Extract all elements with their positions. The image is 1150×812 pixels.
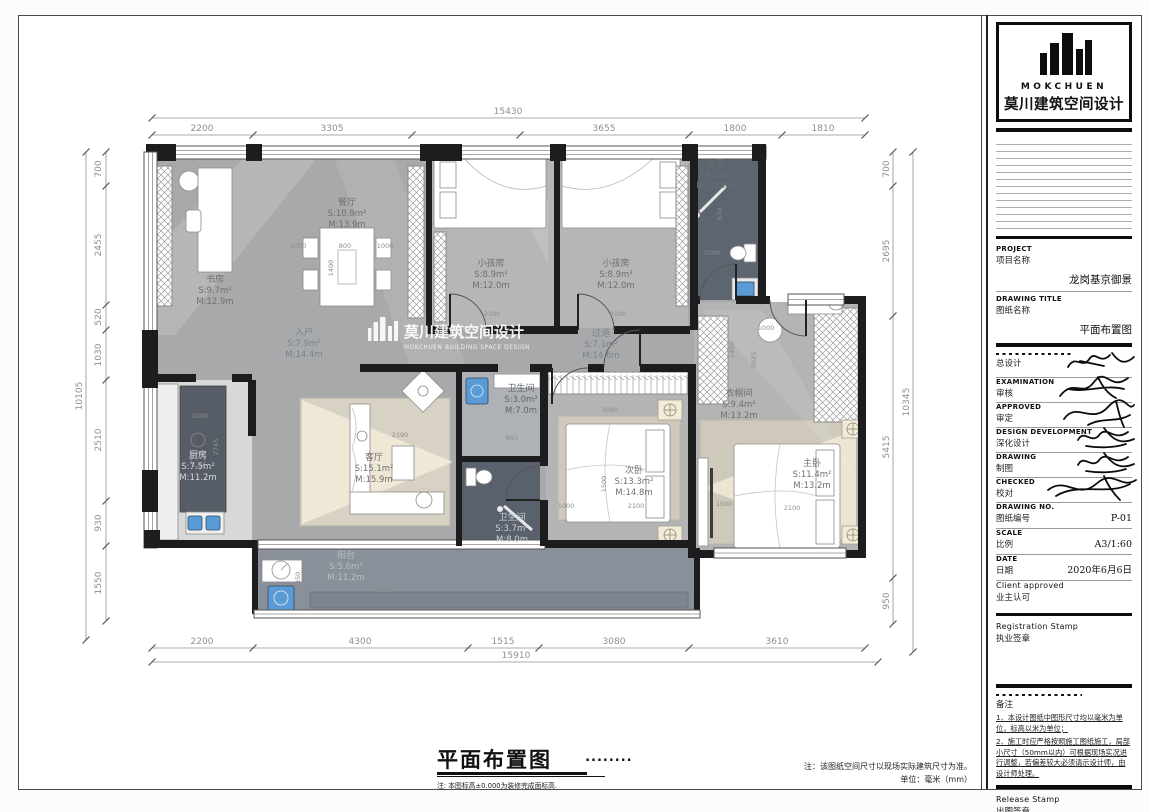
plan-dimension-annotation: 1350 xyxy=(294,572,302,589)
room-area-s: S:6.1m² xyxy=(698,170,731,180)
plan-dimension-annotation: 1500 xyxy=(716,500,733,508)
registration-label-cn: 执业签章 xyxy=(996,632,1132,644)
dimension-total-label: 10345 xyxy=(902,388,912,417)
balcony-railing xyxy=(254,610,700,618)
room-area-m: M:14.4m xyxy=(285,350,322,360)
sign-row-checked: CHECKED 校对 xyxy=(996,478,1132,503)
room-name: 小孩房 xyxy=(477,257,504,269)
room-area-s: S:7.9m² xyxy=(287,339,320,349)
dimension-label: 950 xyxy=(882,592,892,609)
dimension-chain-top: 2200330536551800181015430 xyxy=(149,107,869,139)
room-area-m: M:12.0m xyxy=(597,281,634,291)
dotted-rule xyxy=(996,694,1082,697)
remark-item: 2、施工时应严格按照施工图纸施工，局部小尺寸（50mm以内）可根据现场实况进行调… xyxy=(996,737,1132,779)
room-area-m: M:11.2m xyxy=(179,473,216,483)
room-area-s: S:9.4m² xyxy=(722,400,755,410)
dimension-label: 2455 xyxy=(94,234,104,257)
signature-examination xyxy=(1058,374,1138,402)
titleblock-separator-2 xyxy=(986,15,988,789)
project-label-cn: 项目名称 xyxy=(996,254,1132,266)
plan-dimension-annotation: 2100 xyxy=(610,310,627,318)
plan-dimension-annotation: 1500 xyxy=(600,476,608,493)
release-label-cn: 出图签章 xyxy=(996,805,1132,812)
registration-label-en: Registration Stamp xyxy=(996,622,1132,631)
watermark-cn: 莫川建筑空间设计 xyxy=(404,323,524,341)
logo-mark-icon xyxy=(1032,31,1096,75)
title-underline xyxy=(437,772,587,775)
room-area-m: M:11.2m xyxy=(327,573,364,583)
room-area-s: S:9.7m² xyxy=(198,286,231,296)
remarks-title: 备注 xyxy=(996,698,1132,710)
dimension-label: 3305 xyxy=(321,124,344,134)
signature-drawing xyxy=(1074,449,1138,477)
signature-design-development xyxy=(1074,424,1138,452)
room-name: 衣帽间 xyxy=(725,387,752,399)
plan-dimension-annotation: 995 xyxy=(506,434,518,442)
brand-name-cn: 莫川建筑空间设计 xyxy=(999,93,1129,114)
scale-value: A3/1:60 xyxy=(1095,539,1132,550)
dimension-note-line2: 单位：毫米（mm） xyxy=(804,773,972,786)
date-row: DATE 日期 2020年6月6日 xyxy=(996,555,1132,581)
plan-dimension-annotation: 3535 xyxy=(376,586,393,594)
drawing-title-label-cn: 图纸名称 xyxy=(996,304,1132,316)
room-name: 主卧 xyxy=(803,457,821,469)
sheet-title: 平面布置图 xyxy=(437,744,552,774)
plan-dimension-annotation: 1400 xyxy=(728,342,736,359)
date-value: 2020年6月6日 xyxy=(1067,562,1132,576)
room-name: 厨房 xyxy=(189,449,207,461)
signature-chief xyxy=(1064,349,1138,377)
plan-dimension-annotation: 1000 xyxy=(704,249,721,257)
closet-window-band xyxy=(788,294,844,305)
dimension-total-label: 15910 xyxy=(502,651,531,661)
dimension-label: 1810 xyxy=(812,124,835,134)
room-name: 过道 xyxy=(592,327,610,339)
room-area-m: M:8.0m xyxy=(496,535,528,545)
room-name: 入户 xyxy=(295,326,313,338)
room-area-m: M:12.9m xyxy=(196,297,233,307)
divider-bar xyxy=(996,128,1132,132)
company-logo: MOKCHUEN 莫川建筑空间设计 xyxy=(996,22,1132,122)
room-name: 卫生间 xyxy=(498,511,525,523)
room-area-s: S:15.1m² xyxy=(355,464,394,474)
divider-bar xyxy=(996,684,1132,688)
dimension-label: 1515 xyxy=(492,637,515,647)
master-window-band xyxy=(714,548,846,558)
dimension-label: 3655 xyxy=(593,124,616,134)
room-area-m: M:14.8m xyxy=(615,488,652,498)
room-label-bath1: 卫生间S:3.0m²M:7.0m xyxy=(504,382,537,416)
room-area-s: S:5.6m² xyxy=(329,562,362,572)
plan-dimension-annotation: 2025 xyxy=(750,352,758,369)
dimension-label: 1550 xyxy=(94,571,104,594)
plan-dimension-annotation: 2100 xyxy=(628,502,645,510)
room-area-s: S:10.9m² xyxy=(328,209,367,219)
dimension-note: 注：该图纸空间尺寸以现场实际建筑尺寸为准。 单位：毫米（mm） xyxy=(804,760,972,786)
client-approved-row: Client approved 业主认可 xyxy=(996,581,1132,607)
drawing-no-label-en: DRAWING NO. xyxy=(996,503,1132,511)
sheet-title-group: 平面布置图 ........ xyxy=(437,744,633,774)
plan-dimension-annotation: 2745 xyxy=(212,439,220,456)
sheet-title-dots: ........ xyxy=(585,750,633,765)
room-area-m: M:13.9m xyxy=(328,220,365,230)
dotted-rule xyxy=(996,353,1074,356)
dimension-label: 520 xyxy=(94,308,104,325)
dimension-label: 2695 xyxy=(882,240,892,263)
dimension-label: 3080 xyxy=(603,637,626,647)
room-area-s: S:13.3m² xyxy=(615,477,654,487)
room-label-kids2: 小孩房S:8.9m²M:12.0m xyxy=(597,257,634,291)
dimension-label: 5415 xyxy=(882,436,892,459)
plan-dimension-annotation: 3080 xyxy=(602,406,619,414)
dimension-label: 1030 xyxy=(94,343,104,366)
room-label-kids1: 小孩房S:8.9m²M:12.0m xyxy=(472,257,509,291)
plan-dimension-annotation: 1000 xyxy=(377,242,394,250)
divider-bar xyxy=(996,785,1132,789)
room-name: 书房 xyxy=(206,273,224,285)
dimension-label: 700 xyxy=(94,160,104,177)
room-area-m: M:13.2m xyxy=(793,481,830,491)
scale-label-en: SCALE xyxy=(996,529,1132,537)
dimension-label: 2200 xyxy=(191,637,214,647)
room-name: 次卧 xyxy=(625,464,643,476)
room-area-m: M:10.3m xyxy=(696,181,733,191)
plan-dimension-annotation: 1000 xyxy=(192,412,209,420)
room-area-m: M:15.9m xyxy=(355,475,392,485)
dimension-chain-right: 7002695541595010345 xyxy=(882,149,917,656)
title-block: MOKCHUEN 莫川建筑空间设计 PROJECT 项目名称 龙岗基京御景 DR… xyxy=(996,22,1132,812)
plan-dimension-annotation: 1400 xyxy=(327,260,335,277)
project-section: PROJECT 项目名称 龙岗基京御景 xyxy=(996,245,1132,287)
dimension-label: 700 xyxy=(882,160,892,177)
room-name: 客厅 xyxy=(365,451,383,463)
plan-dimension-annotation: 800 xyxy=(339,242,351,250)
remarks-section: 备注 1、本设计图纸中图形尺寸均以毫米为单位，标高以米为单位； 2、施工时应严格… xyxy=(996,698,1132,779)
registration-stamp-area: Registration Stamp 执业签章 xyxy=(996,622,1132,678)
plan-dimension-annotation: 1000 xyxy=(290,242,307,250)
project-label-en: PROJECT xyxy=(996,245,1132,253)
room-name: 餐厅 xyxy=(338,196,356,208)
dimension-label: 3610 xyxy=(766,637,789,647)
drawing-sheet: 莫川建筑空间设计 MOKCHUEN BUILDING SPACE DESIGN … xyxy=(0,0,1150,812)
room-area-s: S:11.4m² xyxy=(793,470,832,480)
release-label-en: Release Stamp xyxy=(996,795,1132,804)
dimension-label: 2200 xyxy=(191,124,214,134)
room-area-m: M:7.0m xyxy=(505,406,537,416)
release-stamp-area: Release Stamp 出图签章 xyxy=(996,795,1132,812)
room-area-s: S:3.0m² xyxy=(504,395,537,405)
elevation-note: 注: 本图标高±0.000为装修完成面标高. xyxy=(437,780,557,790)
room-name: 阳台 xyxy=(337,549,355,561)
notes-ruled-lines xyxy=(996,138,1132,230)
title-underline-2 xyxy=(437,776,605,777)
client-label-en: Client approved xyxy=(996,581,1132,590)
room-area-s: S:8.9m² xyxy=(599,270,632,280)
plan-dimension-annotation: 2190 xyxy=(392,431,409,439)
drawing-title-value: 平面布置图 xyxy=(996,322,1132,337)
room-area-s: S:3.7m² xyxy=(495,524,528,534)
watermark-en: MOKCHUEN BUILDING SPACE DESIGN xyxy=(404,345,530,351)
drawing-title-label-en: DRAWING TITLE xyxy=(996,295,1132,303)
dimension-chain-left: 700245552010302510930155010105 xyxy=(75,149,110,644)
divider-bar xyxy=(996,613,1132,617)
dimension-label: 4300 xyxy=(349,637,372,647)
remark-item: 1、本设计图纸中图形尺寸均以毫米为单位，标高以米为单位； xyxy=(996,713,1132,734)
drawing-no-value: P-01 xyxy=(1111,513,1132,524)
divider-bar xyxy=(996,236,1132,240)
room-area-s: S:7.1m² xyxy=(584,340,617,350)
dimension-label: 1800 xyxy=(724,124,747,134)
dimension-total-label: 10105 xyxy=(75,382,85,411)
drawing-title-section: DRAWING TITLE 图纸名称 平面布置图 xyxy=(996,295,1132,337)
room-label-bath2: 卫生间S:3.7m²M:8.0m xyxy=(495,511,528,545)
plan-dimension-annotation: 1000 xyxy=(758,324,775,332)
plan-dimension-annotation: 670 xyxy=(716,208,724,220)
room-area-m: M:13.2m xyxy=(720,411,757,421)
room-area-s: S:7.5m² xyxy=(181,462,214,472)
plan-dimension-annotation: 2100 xyxy=(484,310,501,318)
dimension-label: 2510 xyxy=(94,428,104,451)
room-name: 小孩房 xyxy=(602,257,629,269)
dimension-label: 930 xyxy=(94,514,104,531)
project-value: 龙岗基京御景 xyxy=(996,272,1132,287)
plan-dimension-annotation: 2100 xyxy=(784,504,801,512)
room-area-m: M:14.6m xyxy=(582,351,619,361)
scale-row: SCALE 比例 A3/1:60 xyxy=(996,529,1132,555)
room-area-s: S:8.9m² xyxy=(474,270,507,280)
room-area-m: M:12.0m xyxy=(472,281,509,291)
divider-bar xyxy=(996,343,1132,347)
dimension-chain-bottom: 2200430015153080361015910 xyxy=(149,637,882,666)
room-label-closet: 衣帽间S:9.4m²M:13.2m xyxy=(720,387,757,421)
dimension-total-label: 15430 xyxy=(494,107,523,117)
floor-plan: 莫川建筑空间设计 MOKCHUEN BUILDING SPACE DESIGN … xyxy=(0,0,985,812)
client-label-cn: 业主认可 xyxy=(996,591,1132,603)
plan-dimension-annotation: 1000 xyxy=(558,502,575,510)
signature-checked xyxy=(1046,474,1138,502)
room-name: 卫生间 xyxy=(507,382,534,394)
drawing-no-row: DRAWING NO. 图纸编号 P-01 xyxy=(996,503,1132,529)
room-name: 主卫 xyxy=(706,157,724,169)
dimension-note-line1: 注：该图纸空间尺寸以现场实际建筑尺寸为准。 xyxy=(804,760,972,773)
brand-name-en: MOKCHUEN xyxy=(999,82,1129,92)
